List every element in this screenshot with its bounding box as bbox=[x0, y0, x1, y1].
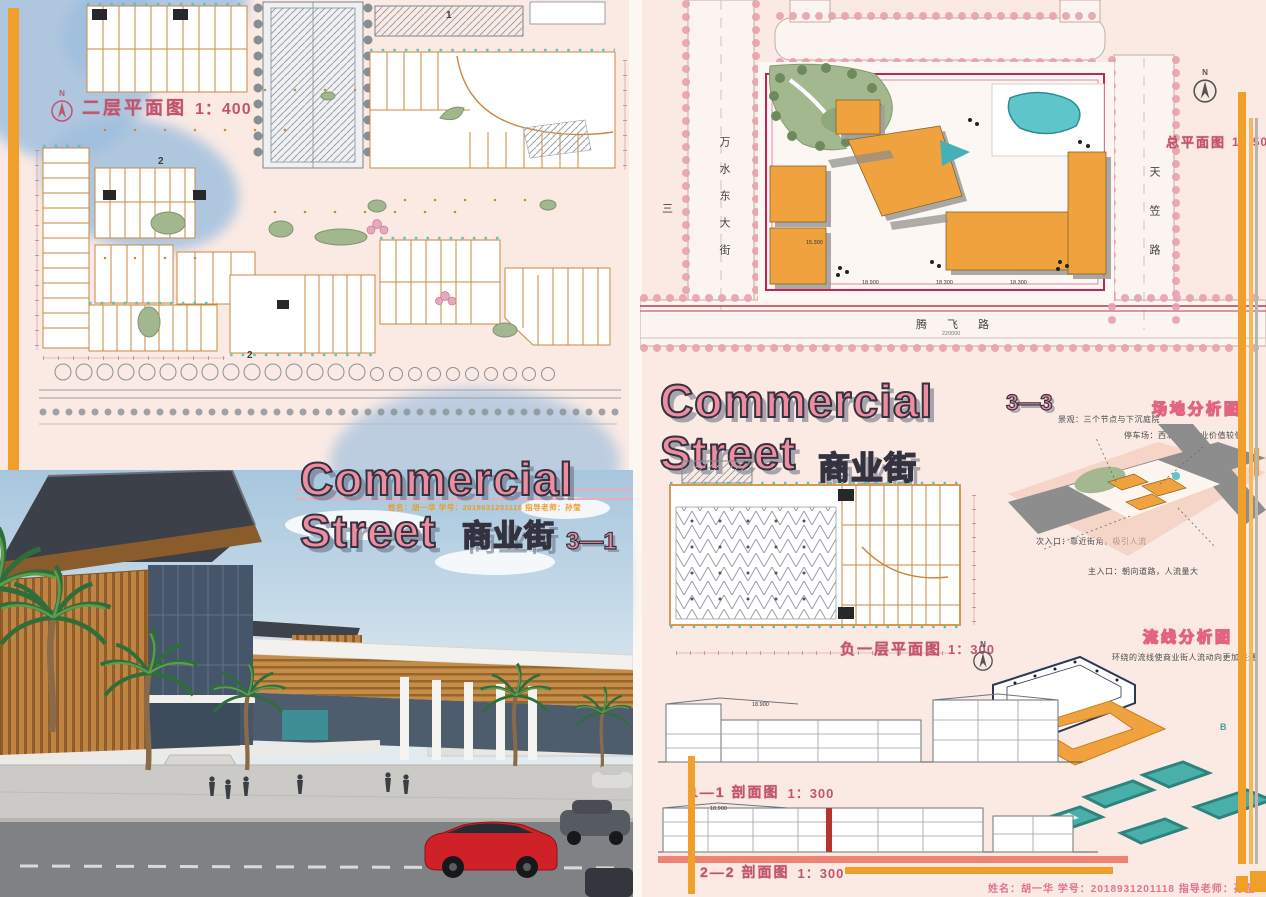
left-title-number: 3—1 bbox=[566, 528, 617, 556]
section-marker-2: 2 bbox=[158, 156, 164, 167]
accent-bar-right bbox=[1238, 92, 1246, 864]
left-title-line2: Street bbox=[300, 508, 436, 554]
analysis-note: 主入口：朝向道路，人流量大 bbox=[1088, 566, 1199, 577]
accent-bar-bottom-left bbox=[688, 756, 695, 894]
spot-elevation: 18.300 bbox=[936, 280, 953, 286]
section-2-title: 2—2 剖面图 bbox=[700, 862, 789, 882]
section-core bbox=[826, 808, 832, 852]
second-floor-plan-drawing bbox=[25, 0, 633, 448]
page-marker-b: B bbox=[1220, 722, 1227, 732]
right-title-line1: Commercial bbox=[660, 378, 933, 424]
plan-title: 二层平面图 bbox=[82, 94, 187, 120]
site-north: N bbox=[1192, 62, 1218, 104]
site-analysis-axon bbox=[1008, 424, 1266, 560]
truss-corridor bbox=[258, 2, 368, 168]
presentation-board: N 二层平面图 1：400 1 2 2 bbox=[0, 0, 1266, 897]
section-2-label-row: 2—2 剖面图 1：300 bbox=[700, 862, 844, 882]
accent-bar-horizontal bbox=[845, 867, 1113, 874]
section-marker-1: 1 bbox=[446, 10, 452, 21]
spot-elevation: 18.300 bbox=[1010, 280, 1027, 286]
road-dimension: 220000 bbox=[942, 331, 960, 337]
left-title-cn: 商业街 bbox=[462, 522, 555, 552]
left-title-line1: Commercial bbox=[300, 456, 573, 502]
road-name-west: 万水东大街 bbox=[716, 136, 732, 271]
street-trees bbox=[55, 364, 555, 381]
section-1-title: 1—1 剖面图 bbox=[690, 782, 779, 802]
section-1-label-row: 1—1 剖面图 1：300 bbox=[690, 782, 834, 802]
site-title: 总平面图 bbox=[1166, 132, 1226, 151]
north-arrow: N bbox=[50, 90, 74, 123]
road-name-south: 腾飞路 bbox=[916, 316, 1009, 332]
site-analysis-title: 场地分析图 bbox=[1152, 398, 1242, 419]
road-name-edge: 三 bbox=[662, 200, 673, 216]
north-letter: N bbox=[59, 90, 65, 98]
accent-bar-right-3 bbox=[1255, 118, 1258, 864]
plan-title-row: N 二层平面图 1：400 bbox=[50, 90, 252, 123]
section-2-scale: 1：300 bbox=[797, 863, 844, 882]
section-1-scale: 1：300 bbox=[787, 783, 834, 802]
credit-accent-block bbox=[1250, 871, 1266, 892]
road-lines bbox=[39, 390, 621, 398]
section-1-drawing bbox=[658, 690, 1098, 775]
parking-area bbox=[676, 507, 836, 619]
north-letter: N bbox=[1202, 69, 1208, 77]
section-marker-2b: 2 bbox=[247, 350, 253, 361]
credit-text: 姓名：胡一华 学号：2018931201118 指导老师：孙莹 bbox=[988, 880, 1256, 895]
plan-scale: 1：400 bbox=[195, 95, 252, 119]
roof-plaza-pool bbox=[992, 84, 1104, 156]
compass-icon bbox=[1192, 78, 1218, 104]
basement-title: 负一层平面图 bbox=[840, 638, 942, 659]
spot-elevation: 15.300 bbox=[806, 240, 823, 246]
section-spot-elevation: 18.900 bbox=[710, 806, 727, 812]
spot-elevation: 18.900 bbox=[862, 280, 879, 286]
ramp bbox=[682, 461, 752, 483]
circulation-title: 流线分析图 bbox=[1143, 626, 1233, 647]
section-spot-elevation: 18.900 bbox=[752, 702, 769, 708]
accent-bar-right-2 bbox=[1249, 118, 1253, 864]
right-title-number: 3—3 bbox=[1006, 390, 1052, 416]
compass-icon bbox=[50, 99, 74, 123]
dark-car-corner bbox=[585, 868, 633, 897]
road-name-east: 天笠路 bbox=[1146, 166, 1162, 283]
credit-accent-block bbox=[1236, 876, 1248, 892]
